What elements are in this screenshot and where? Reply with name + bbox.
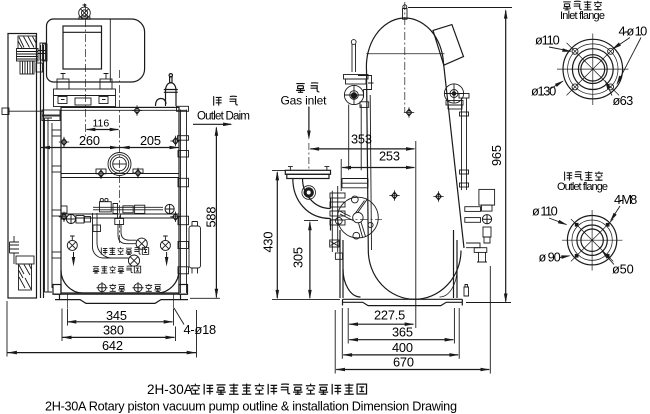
svg-text:2H-30A Rotary piston vacuum pu: 2H-30A Rotary piston vacuum pump outline… bbox=[45, 400, 457, 414]
svg-text:116: 116 bbox=[93, 118, 110, 130]
svg-text:345: 345 bbox=[106, 308, 127, 323]
svg-text:ø 90: ø 90 bbox=[539, 250, 561, 265]
svg-text:2H-30A: 2H-30A bbox=[147, 382, 193, 397]
svg-text:ø 110: ø 110 bbox=[532, 204, 558, 219]
svg-text:4-M8: 4-M8 bbox=[614, 192, 637, 207]
svg-text:Outlet Daim: Outlet Daim bbox=[197, 111, 250, 123]
svg-text:588: 588 bbox=[204, 207, 219, 228]
svg-text:670: 670 bbox=[393, 354, 414, 369]
svg-text:365: 365 bbox=[392, 325, 413, 340]
svg-text:ø110: ø110 bbox=[535, 33, 560, 48]
svg-text:4-ø18: 4-ø18 bbox=[184, 322, 217, 337]
svg-text:ø50: ø50 bbox=[612, 262, 634, 277]
svg-text:260: 260 bbox=[79, 133, 100, 148]
svg-text:227.5: 227.5 bbox=[374, 308, 405, 323]
svg-text:642: 642 bbox=[102, 338, 123, 353]
svg-text:253: 253 bbox=[379, 149, 400, 164]
svg-text:ø63: ø63 bbox=[613, 93, 634, 108]
svg-text:Gas inlet: Gas inlet bbox=[281, 94, 328, 108]
svg-text:965: 965 bbox=[489, 145, 504, 166]
svg-text:ø130: ø130 bbox=[531, 84, 556, 99]
svg-text:400: 400 bbox=[392, 340, 413, 355]
svg-text:4-ø 10: 4-ø 10 bbox=[619, 24, 648, 39]
svg-text:305: 305 bbox=[291, 247, 306, 268]
svg-text:380: 380 bbox=[103, 323, 124, 338]
svg-text:430: 430 bbox=[261, 232, 276, 253]
svg-text:Inlet flange: Inlet flange bbox=[560, 10, 605, 22]
svg-text:353: 353 bbox=[351, 132, 372, 147]
svg-text:205: 205 bbox=[140, 133, 161, 148]
svg-text:Outlet flange: Outlet flange bbox=[557, 181, 608, 193]
